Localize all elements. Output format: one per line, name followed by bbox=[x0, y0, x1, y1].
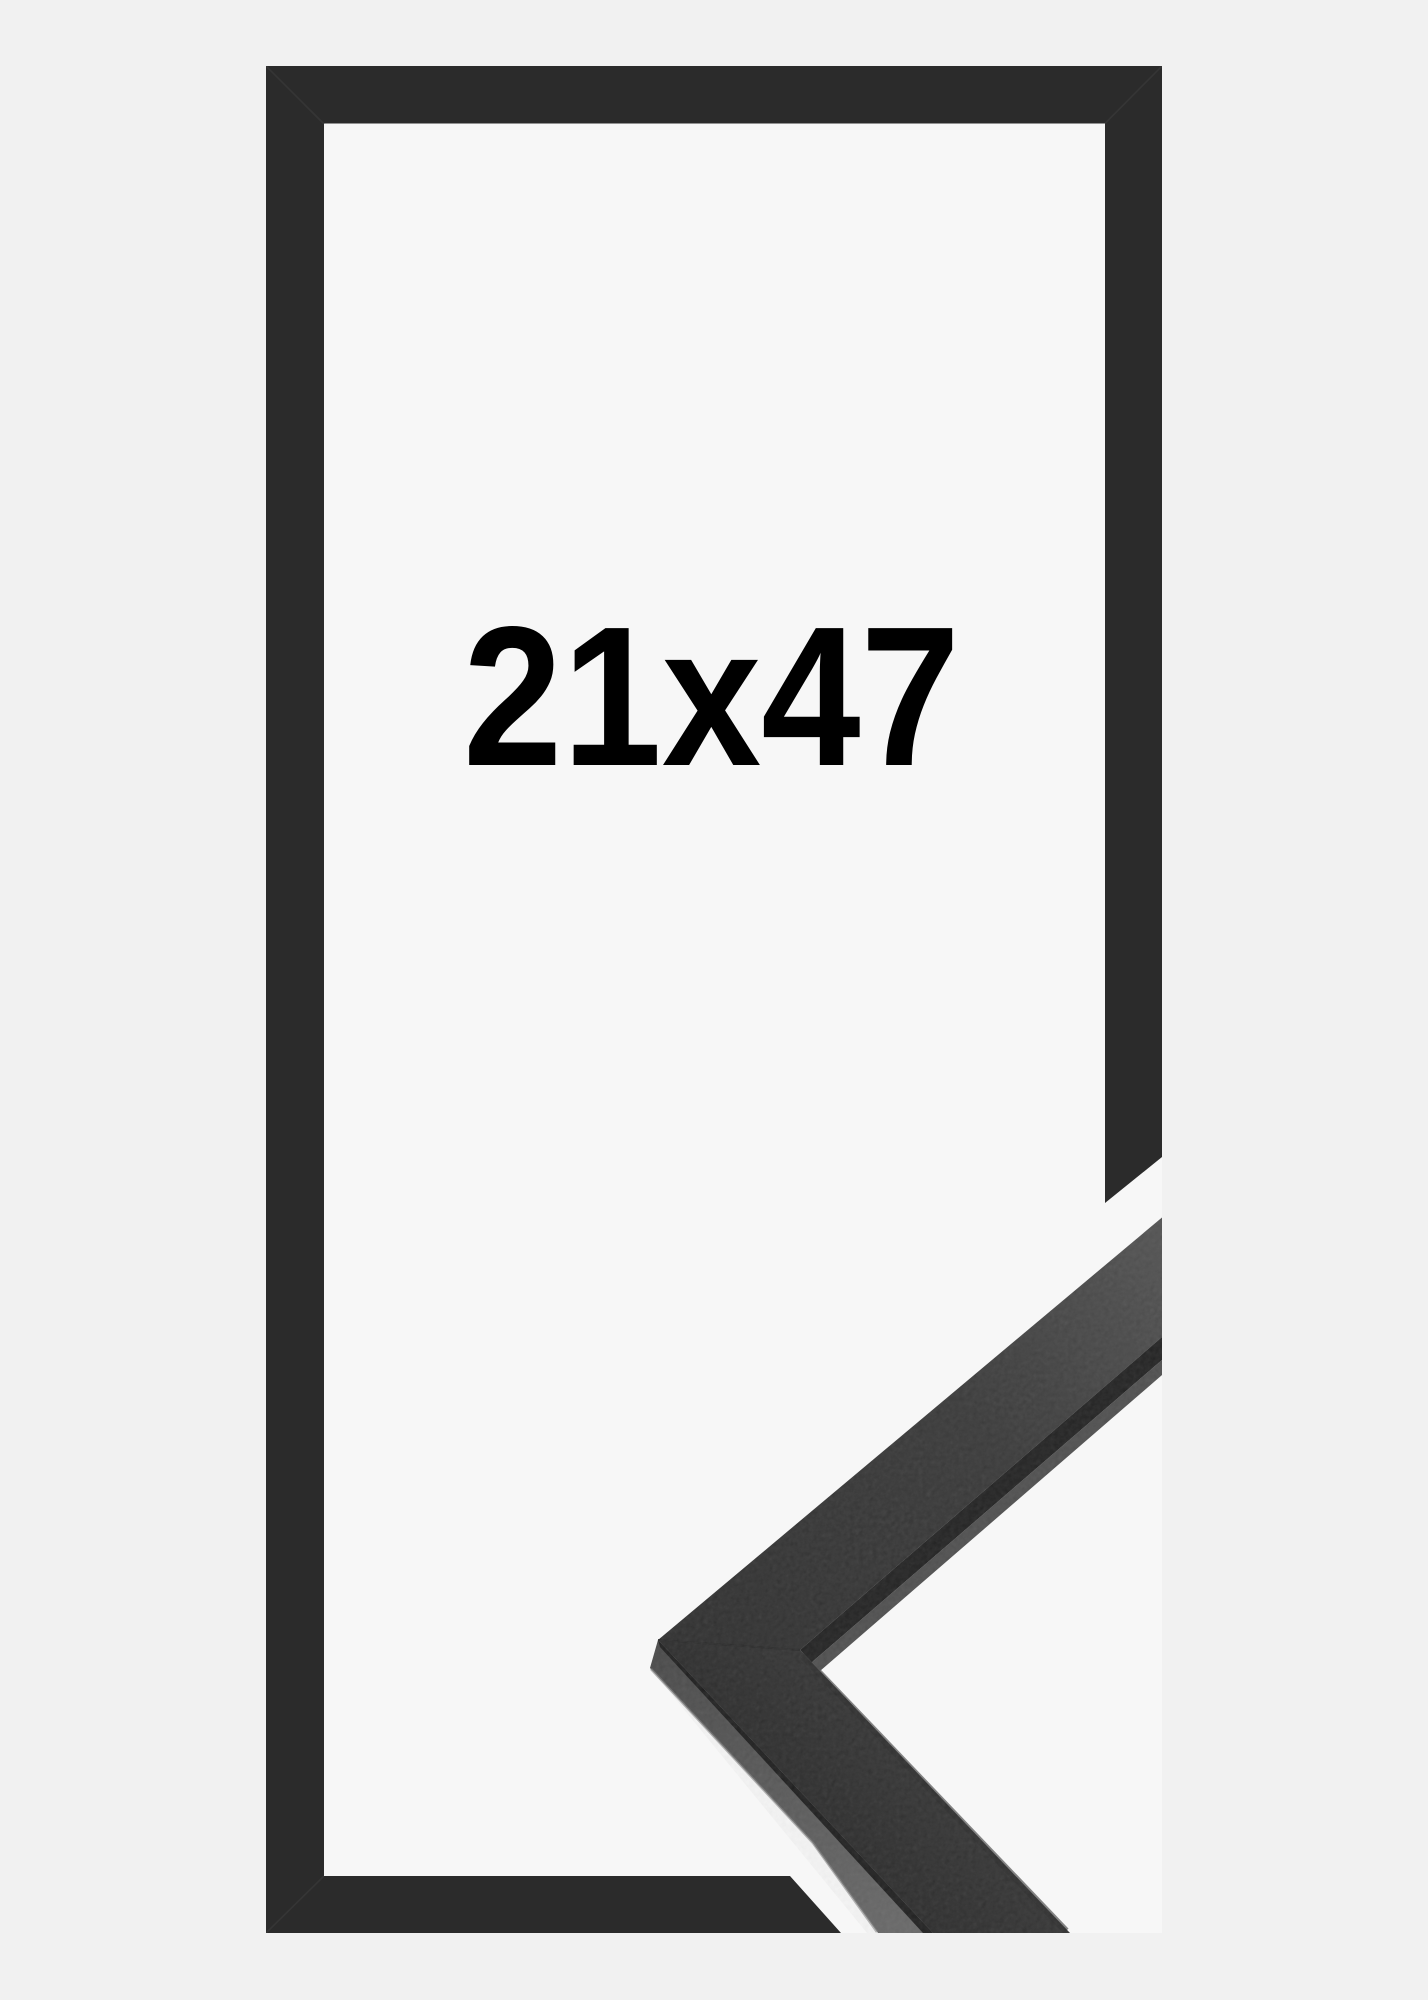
svg-text:21x47: 21x47 bbox=[463, 586, 960, 808]
